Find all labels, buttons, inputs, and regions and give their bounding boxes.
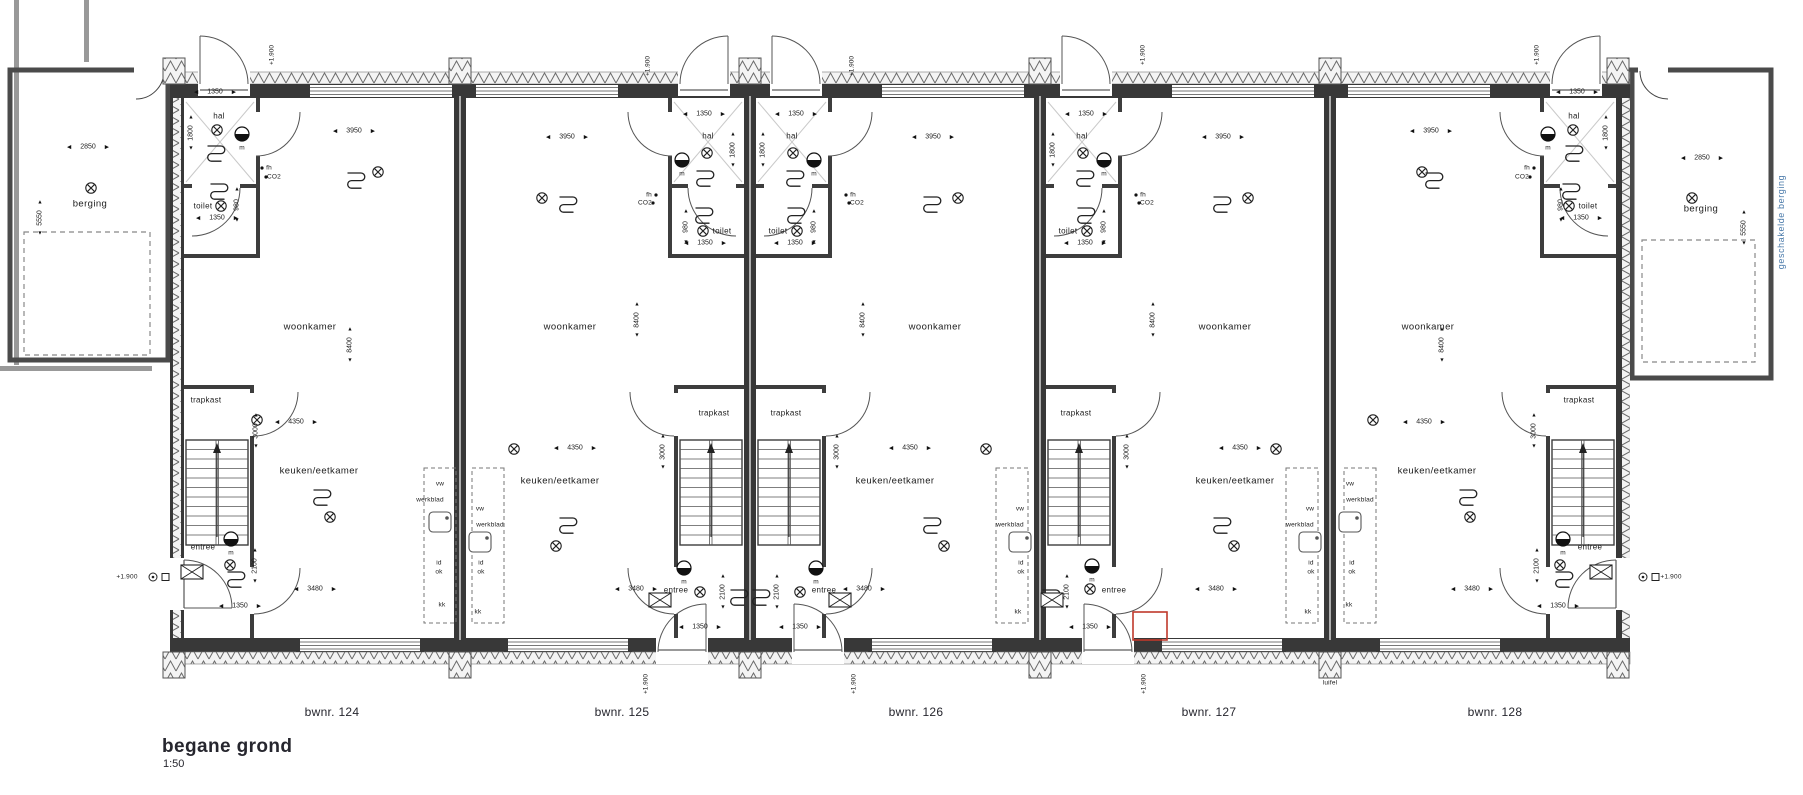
radiator-icon (788, 208, 805, 223)
lamp-icon (1555, 560, 1565, 570)
lamp-icon (795, 587, 805, 597)
lamp-icon (1417, 167, 1427, 177)
dot-icon (1532, 166, 1535, 169)
lamp-icon (551, 541, 561, 551)
radiator-icon (1460, 490, 1477, 505)
radiator-icon (560, 518, 577, 533)
meter-icon (1556, 532, 1570, 546)
sink-icon (1299, 532, 1321, 552)
unit-label-127: bwnr. 127 (1182, 705, 1237, 719)
berging-right (1632, 64, 1771, 378)
exterior-walls (170, 72, 1630, 664)
radiator-icon (1078, 208, 1095, 223)
wall-end-caps (163, 58, 1629, 678)
radiator-icon (314, 490, 331, 505)
dot-icon (1528, 175, 1531, 178)
radiator-icon (924, 518, 941, 533)
dot-icon (847, 201, 850, 204)
radiator-icon (208, 146, 225, 161)
meter-icon (809, 561, 823, 575)
radiator-icon (696, 208, 713, 223)
lamp-icon (86, 183, 96, 193)
lamp-icon (537, 193, 547, 203)
meter-icon (807, 153, 821, 167)
radiator-icon (787, 171, 804, 186)
radiator-icon (697, 171, 714, 186)
unit-label-125: bwnr. 125 (595, 705, 650, 719)
sink-icon (1339, 512, 1361, 532)
lamp-icon (252, 415, 262, 425)
xbox-icon (649, 593, 671, 607)
unit-floorplan-125 (472, 36, 744, 664)
radiator-icon (924, 197, 941, 212)
lamp-icon (1085, 584, 1095, 594)
lamp-icon (1687, 193, 1697, 203)
radiator-icon (211, 184, 228, 199)
xbox-icon (1041, 593, 1063, 607)
meter-icon (677, 561, 691, 575)
radiator-icon (1426, 173, 1443, 188)
lamp-icon (702, 148, 712, 158)
lamp-icon (1564, 201, 1574, 211)
drawing-scale: 1:50 (163, 758, 184, 770)
meter-icon (224, 532, 238, 546)
lamp-icon (792, 226, 802, 236)
meter-icon (675, 153, 689, 167)
lamp-icon (981, 444, 991, 454)
drawing-title: begane grond (162, 736, 292, 758)
sink-icon (1009, 532, 1031, 552)
radiator-icon (348, 173, 365, 188)
party-walls (454, 96, 1336, 640)
lamp-icon (1243, 193, 1253, 203)
dot-icon (260, 166, 263, 169)
site-fence-lines (0, 0, 152, 371)
floorplan-canvas: woonkamerwoonkamerwoonkamerwoonkamerwoon… (0, 0, 1803, 795)
lamp-icon (1229, 541, 1239, 551)
unit-floorplan-128 (1344, 36, 1636, 652)
xbox-icon (829, 593, 851, 607)
xbox-icon (1590, 565, 1612, 579)
level-icon (1639, 573, 1659, 581)
lamp-icon (788, 148, 798, 158)
lamp-icon (939, 541, 949, 551)
xbox-icon (181, 565, 203, 579)
symbols-layer (86, 125, 1697, 607)
dot-icon (844, 193, 847, 196)
dot-icon (651, 201, 654, 204)
unit-floorplan-126 (756, 36, 1028, 664)
unit-label-126: bwnr. 126 (889, 705, 944, 719)
radiator-icon (1563, 184, 1580, 199)
revision-marker (1133, 612, 1167, 640)
radiator-icon (1214, 518, 1231, 533)
radiator-icon (1556, 572, 1573, 587)
berging-left (10, 64, 168, 360)
lamp-icon (953, 193, 963, 203)
lamp-icon (216, 201, 226, 211)
meter-icon (1097, 153, 1111, 167)
radiator-icon (1214, 197, 1231, 212)
lamp-icon (212, 125, 222, 135)
unit-label-128: bwnr. 128 (1468, 705, 1523, 719)
lamp-icon (1568, 125, 1578, 135)
lamp-icon (698, 226, 708, 236)
meter-icon (1085, 559, 1099, 573)
lamp-icon (509, 444, 519, 454)
radiator-icon (228, 572, 245, 587)
dot-icon (1134, 193, 1137, 196)
lamp-icon (1368, 415, 1378, 425)
lamp-icon (373, 167, 383, 177)
meter-icon (1541, 127, 1555, 141)
lamp-icon (1078, 148, 1088, 158)
unit-interiors (164, 36, 1636, 664)
dot-icon (1137, 201, 1140, 204)
lamp-icon (325, 512, 335, 522)
sink-icon (469, 532, 491, 552)
meter-icon (235, 127, 249, 141)
dot-icon (654, 193, 657, 196)
lamp-icon (695, 587, 705, 597)
radiator-icon (560, 197, 577, 212)
radiator-icon (1077, 171, 1094, 186)
unit-floorplan-124 (164, 36, 456, 652)
unit-label-124: bwnr. 124 (305, 705, 360, 719)
lamp-icon (1271, 444, 1281, 454)
lamp-icon (1465, 512, 1475, 522)
lamp-icon (225, 560, 235, 570)
sink-icon (429, 512, 451, 532)
dot-icon (264, 175, 267, 178)
lamp-icon (1082, 226, 1092, 236)
floorplan-drawing (0, 0, 1803, 795)
